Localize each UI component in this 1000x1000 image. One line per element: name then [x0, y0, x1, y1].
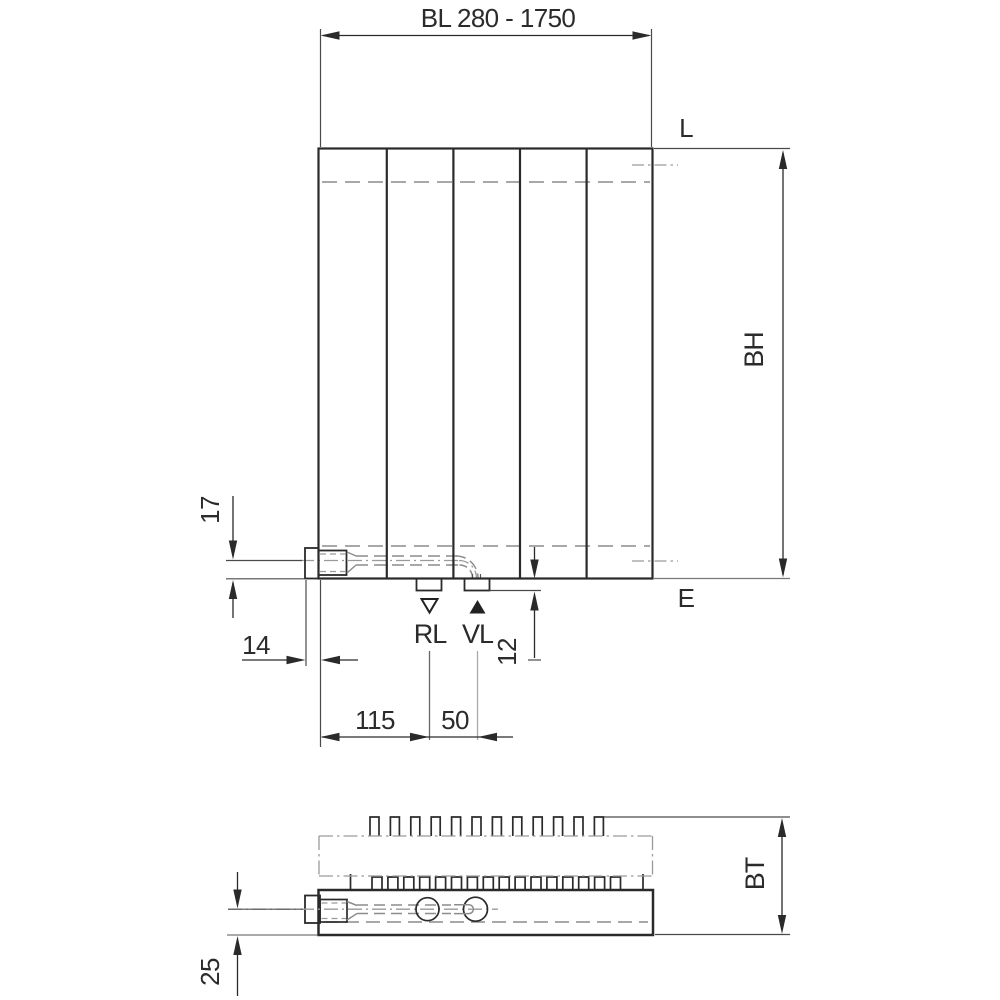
radiator-outline: [319, 149, 653, 579]
connector-taper-plan: [347, 902, 357, 921]
dim12-arrow-up-icon: [530, 592, 538, 611]
bh-dimension-text: BH: [739, 332, 769, 368]
dimension-17: 17: [195, 496, 304, 618]
bottom-edge-label: E: [678, 583, 695, 613]
top-edge-label: L: [679, 113, 693, 143]
dim50-text: 50: [441, 705, 469, 735]
dimension-12: 12: [492, 547, 541, 666]
radiator-spec-drawing: RL VL BL 280 - 1750 L E BH: [0, 0, 1000, 1000]
dim17-arrow-down-icon: [229, 541, 237, 560]
dim14-arrow-right-icon: [287, 656, 306, 664]
bl-dimension-text: BL 280 - 1750: [421, 3, 576, 33]
bl-arrow-left-icon: [321, 31, 340, 39]
pipe-elbow-center-arc: [459, 561, 477, 579]
rl-return-triangle-icon: [422, 599, 438, 613]
vl-label: VL: [462, 619, 494, 649]
dim12-text: 12: [492, 638, 522, 666]
dim25-arrow-down-icon: [233, 890, 241, 909]
dim12-arrow-down-icon: [530, 560, 538, 579]
dim17-text: 17: [195, 496, 225, 524]
dimension-14: 14: [242, 580, 358, 747]
bh-arrow-down-icon: [779, 559, 787, 578]
dim17-arrow-up-icon: [229, 580, 237, 599]
dim14-text: 14: [242, 630, 270, 660]
convector-fins-lower-row: [372, 877, 621, 890]
connector-taper: [347, 552, 356, 573]
dimension-115-50: 115 50: [321, 705, 514, 741]
dim115-text: 115: [355, 705, 395, 735]
pipe-elbow-inner-arc: [460, 565, 473, 578]
dim50-arrow-left-icon: [478, 733, 497, 741]
bt-dimension-text: BT: [740, 857, 770, 890]
connector-plate: [305, 548, 319, 579]
convector-phantom-outline: [319, 836, 653, 876]
plan-view: 25 BT: [195, 817, 790, 996]
vl-supply-triangle-icon: [470, 600, 486, 614]
bh-arrow-up-icon: [779, 150, 787, 169]
dim115-arrow-right-icon: [410, 733, 429, 741]
bt-arrow-down-icon: [778, 915, 786, 934]
rl-stub: [417, 579, 442, 591]
dim25-arrow-up-icon: [233, 936, 241, 955]
dimension-25: 25: [195, 872, 317, 996]
vl-stub: [465, 579, 490, 591]
rl-label: RL: [414, 619, 447, 649]
wall-connector-front: [305, 548, 356, 579]
dimension-bh: BH: [654, 149, 790, 579]
convector-fins-upper-row: [370, 817, 603, 836]
panel-section-outline: [319, 890, 654, 935]
bt-arrow-up-icon: [778, 818, 786, 837]
front-view: RL VL: [300, 149, 678, 741]
dim25-text: 25: [195, 958, 225, 986]
drawing-canvas: RL VL BL 280 - 1750 L E BH: [0, 0, 1000, 1000]
bl-arrow-right-icon: [633, 31, 652, 39]
dimension-bl: BL 280 - 1750: [321, 3, 652, 147]
dim14-arrow-left-icon: [321, 656, 340, 664]
dim115-arrow-left-icon: [321, 733, 340, 741]
